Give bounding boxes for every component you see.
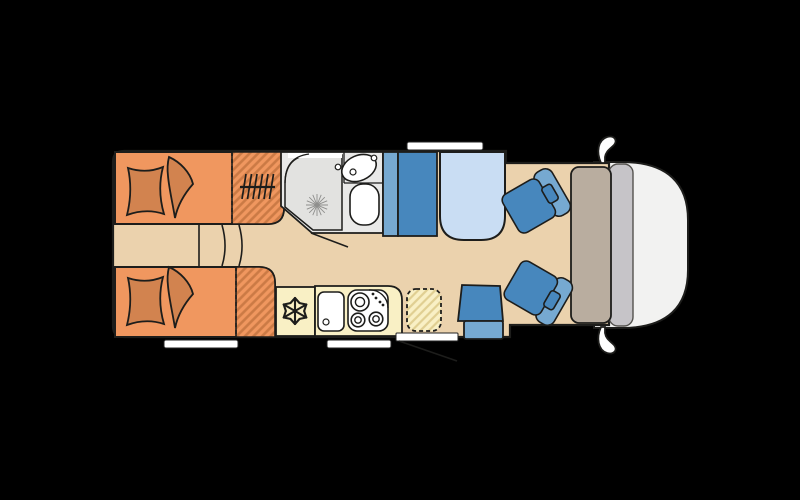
mirror-right-icon: [598, 327, 615, 353]
pillow-icon: [127, 167, 164, 215]
entry-step: [396, 333, 458, 341]
floorplan-stage: [0, 0, 800, 500]
dashboard: [571, 167, 611, 323]
bench-backrest: [383, 152, 398, 236]
sunburst-icon: [306, 194, 328, 216]
hob: [348, 290, 388, 331]
side-seat: [458, 285, 503, 339]
kitchen: [276, 286, 441, 336]
window-top: [407, 142, 483, 150]
window-bottom-kitchen: [327, 340, 391, 348]
dinette-table: [440, 152, 505, 240]
wardrobe-bottom: [236, 267, 275, 337]
entry-door-swing: [399, 341, 457, 361]
worktop-flap: [407, 289, 441, 331]
bed-bottom: [115, 267, 275, 337]
floorplan-svg: [0, 0, 800, 500]
pillow-icon: [127, 277, 164, 325]
toilet: [350, 184, 379, 225]
windshield: [609, 164, 633, 326]
window-bottom-rear: [164, 340, 238, 348]
bench-seat: [398, 152, 437, 236]
mirror-left-icon: [598, 137, 615, 163]
kitchen-sink: [318, 292, 344, 331]
bed-top: [115, 152, 284, 224]
